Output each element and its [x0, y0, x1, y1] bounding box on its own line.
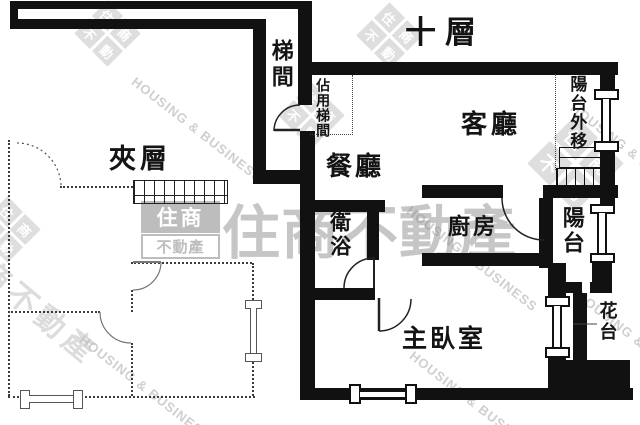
- floor-label-upper: 十層: [405, 16, 485, 49]
- room-label-flower-stand: 花台: [597, 301, 616, 343]
- wall: [10, 1, 312, 9]
- floor-label-mezzanine: 夾層: [109, 145, 171, 174]
- wall: [367, 212, 379, 260]
- room-label-dining-room: 餐廳: [326, 152, 384, 180]
- room-label-stairwell: 梯間: [269, 39, 293, 91]
- door-arc: [133, 262, 161, 290]
- mezzanine-outline: [8, 140, 10, 396]
- wall: [310, 62, 618, 75]
- wall: [548, 282, 582, 293]
- wall: [10, 1, 18, 29]
- door-arc: [17, 143, 61, 187]
- wall: [548, 263, 566, 299]
- mezzanine-partition: [131, 343, 133, 396]
- room-label-master-bedroom: 主臥室: [402, 326, 486, 353]
- room-label-balcony: 陽台: [560, 206, 584, 256]
- brand-diamond-watermark: 住商不動: [74, 0, 140, 66]
- room-label-living-room: 客廳: [461, 110, 521, 138]
- brand-logo-bottom: 不動產: [141, 234, 220, 259]
- balcony-extended-separator: [555, 74, 556, 170]
- room-label-occupied-stairwell: 佔用梯間: [315, 78, 330, 138]
- wall: [313, 288, 375, 300]
- mezzanine-partition: [8, 311, 100, 313]
- mezzanine-partition: [60, 186, 133, 188]
- balcony-fixture-steps: [556, 168, 601, 188]
- mezzanine-partition: [131, 262, 252, 264]
- room-label-kitchen: 廚房: [448, 215, 498, 239]
- wall: [422, 185, 503, 198]
- wall: [18, 19, 266, 29]
- wall: [590, 282, 612, 293]
- brand-logo-top: 住商: [141, 201, 220, 233]
- room-label-balcony-extended: 陽台外移: [567, 75, 585, 151]
- watermark-housing-business: HOUSING & BUSINESS: [407, 348, 544, 425]
- wall: [253, 19, 266, 184]
- wall: [253, 170, 308, 184]
- wall: [573, 293, 587, 363]
- wall: [422, 253, 553, 266]
- mezzanine-partition: [131, 290, 133, 312]
- wall: [600, 150, 615, 207]
- brand-logo-box: 住商 不動產: [141, 201, 220, 259]
- floorplan-canvas: HOUSING & BUSINESS HOUSING & BUSINESS HO…: [0, 0, 640, 425]
- room-label-bathroom: 衛浴: [327, 211, 350, 259]
- staircase-symbol: [133, 180, 228, 204]
